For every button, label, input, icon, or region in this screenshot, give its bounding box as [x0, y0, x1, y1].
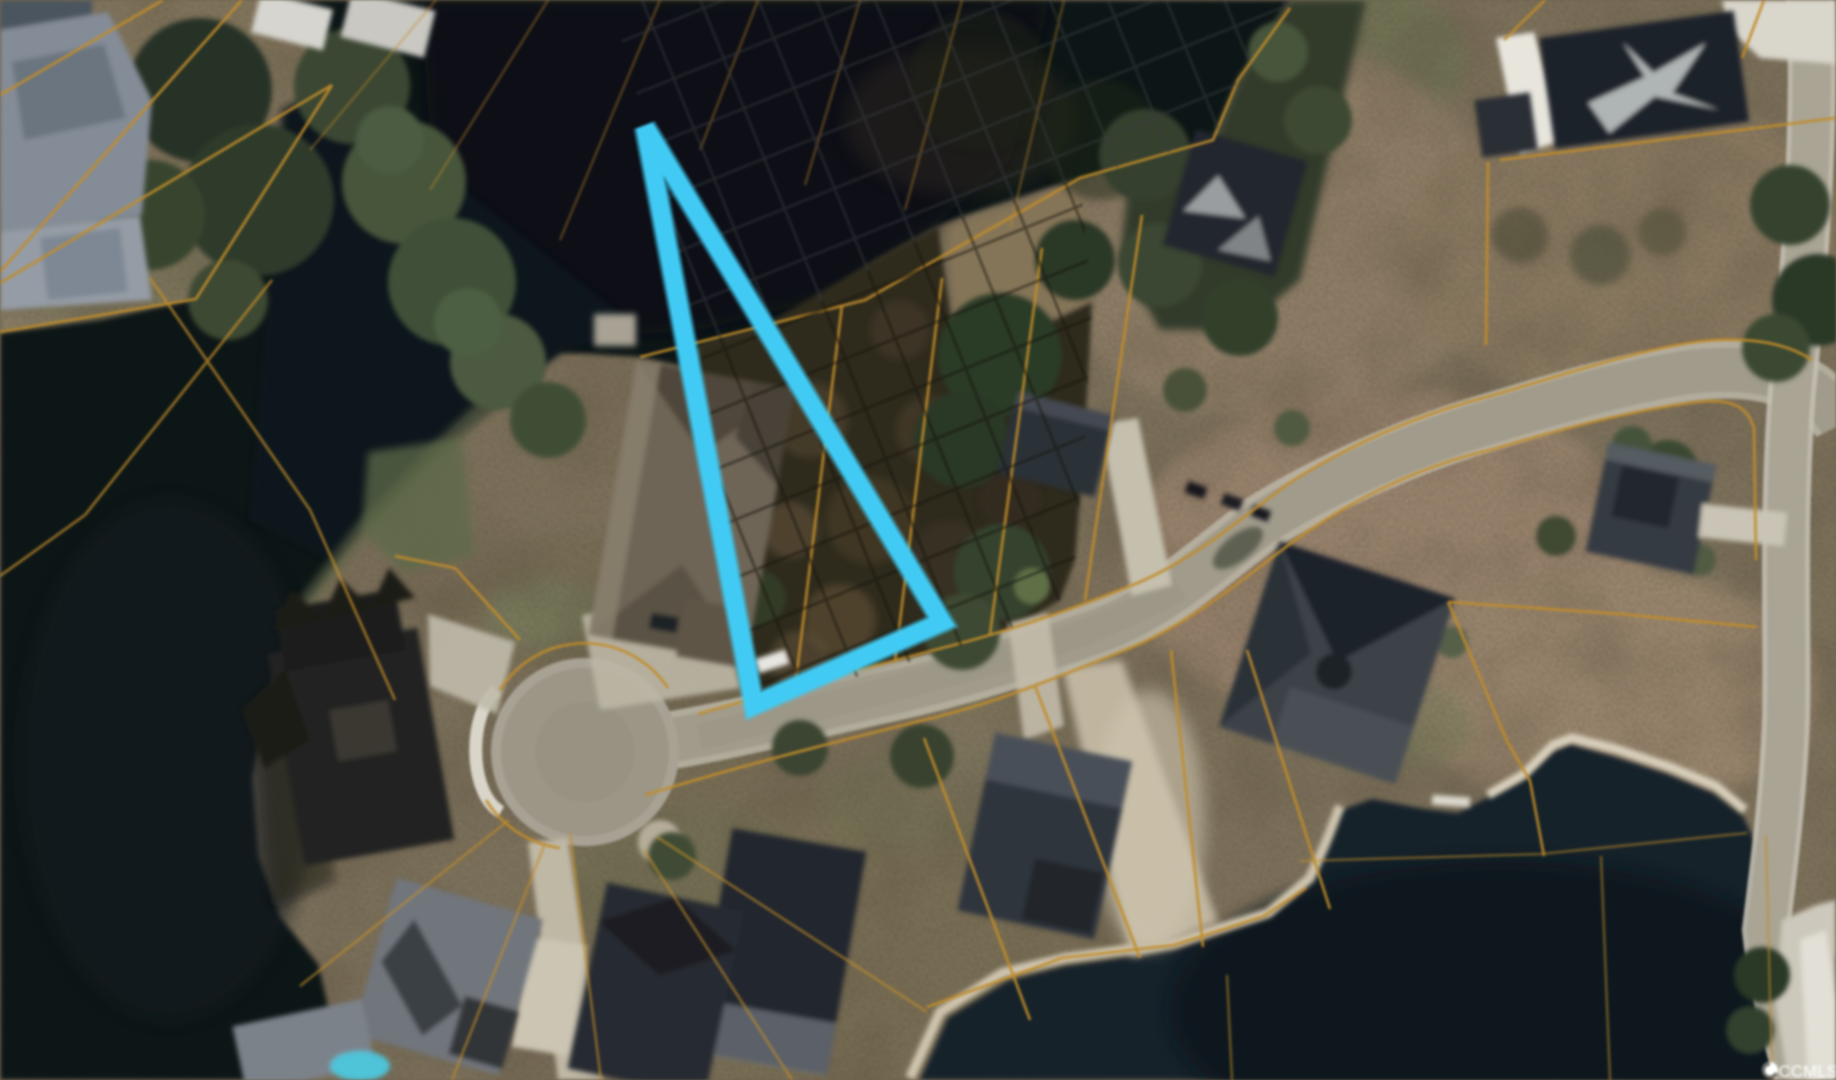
svg-text:CCMLS: CCMLS — [1778, 1062, 1836, 1080]
